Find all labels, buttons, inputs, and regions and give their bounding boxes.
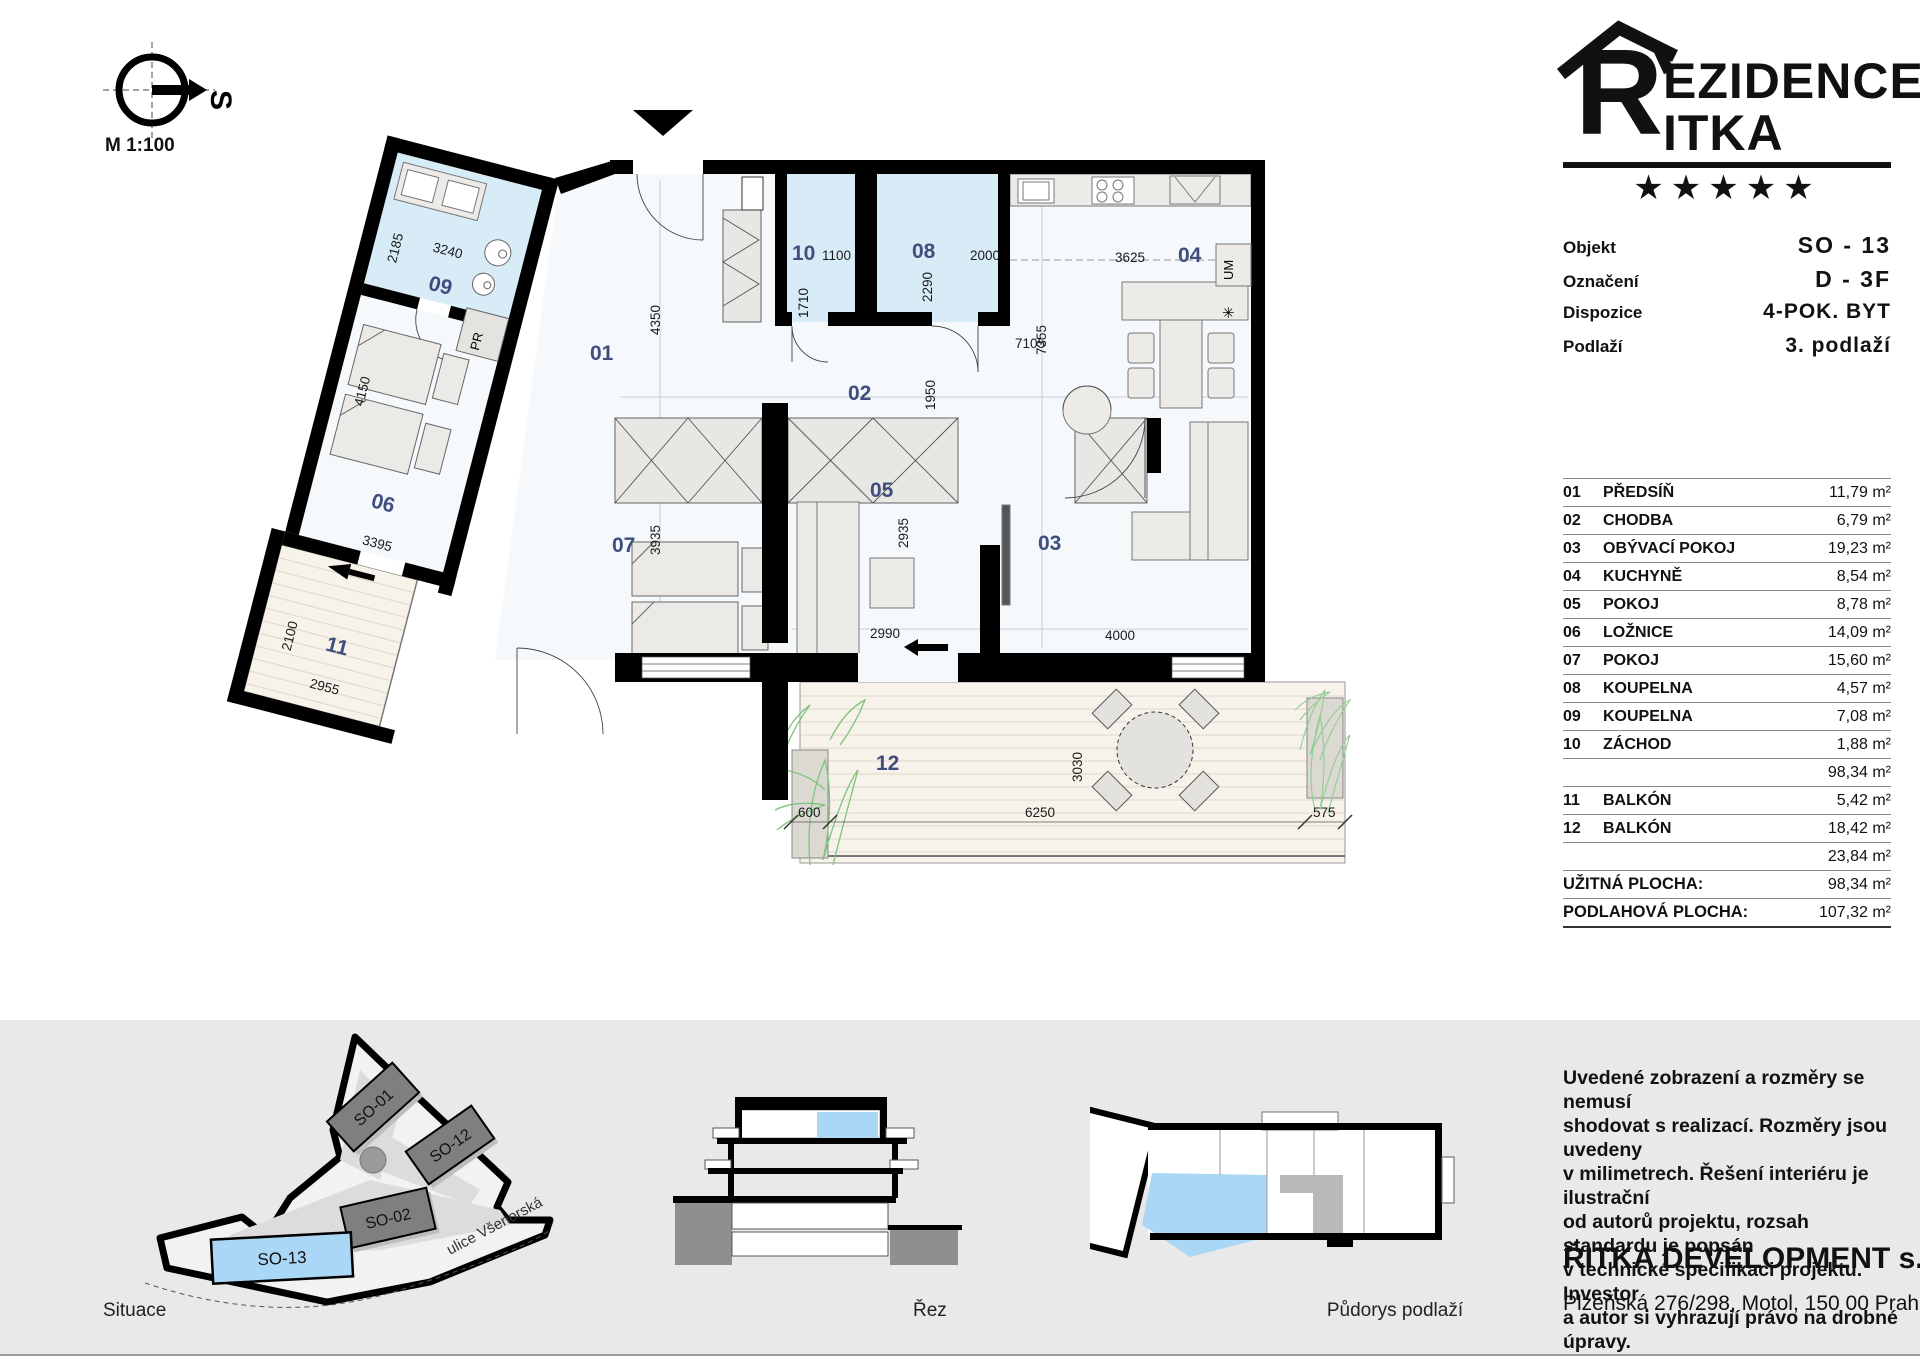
dim-2990: 2990 <box>870 626 900 641</box>
floor-plan: 3240 2185 09 PR 4150 06 3395 11 2100 295… <box>170 50 1370 870</box>
ground-slab <box>673 1196 896 1203</box>
table-row: 06 LOŽNICE 14,09 m² <box>1563 618 1891 646</box>
dim-6250: 6250 <box>1025 805 1055 820</box>
table-total-podlahova: PODLAHOVÁ PLOCHA: 107,32 m² <box>1563 898 1891 926</box>
info-row-dispozice: Dispozice 4-POK. BYT <box>1563 300 1891 334</box>
room-label-01: 01 <box>590 342 614 365</box>
table-row-balcony: 11 BALKÓN 5,42 m² <box>1563 786 1891 814</box>
info-label: Dispozice <box>1563 303 1642 323</box>
total-label: UŽITNÁ PLOCHA: <box>1563 875 1828 894</box>
company-address: Plzeňská 276/298, Motol, 150 00 Praha 5 <box>1563 1292 1908 1316</box>
row-num: 12 <box>1563 820 1603 838</box>
mini-floor-plan <box>1090 1085 1470 1270</box>
dim-1710: 1710 <box>796 288 811 318</box>
dim-4000: 4000 <box>1105 628 1135 643</box>
total-value: 107,32 m² <box>1819 904 1891 922</box>
table-total-uzitna: UŽITNÁ PLOCHA: 98,34 m² <box>1563 870 1891 898</box>
row-num: 07 <box>1563 652 1603 670</box>
caption-rez: Řez <box>913 1300 947 1322</box>
row-area: 14,09 m² <box>1828 624 1891 642</box>
row-area: 15,60 m² <box>1828 652 1891 670</box>
dim-2290: 2290 <box>920 272 935 302</box>
table-row: 08 KOUPELNA 4,57 m² <box>1563 674 1891 702</box>
row-name: ZÁCHOD <box>1603 736 1837 754</box>
info-row-oznaceni: Označení D - 3F <box>1563 266 1891 300</box>
total-label: PODLAHOVÁ PLOCHA: <box>1563 903 1819 922</box>
row-name: BALKÓN <box>1603 820 1828 838</box>
info-label: Objekt <box>1563 238 1616 258</box>
scale-label: M 1:100 <box>105 135 175 157</box>
roundabout <box>360 1147 386 1173</box>
brand-logo: R EZIDENCE ITKA ★★★★★ <box>1563 14 1891 214</box>
logo-line1: EZIDENCE <box>1663 56 1920 106</box>
mini-right-wall <box>1435 1123 1442 1235</box>
row-num: 05 <box>1563 596 1603 614</box>
info-row-objekt: Objekt SO - 13 <box>1563 232 1891 266</box>
mini-wing <box>1090 1107 1157 1254</box>
table-bottom-border <box>1563 926 1891 928</box>
row-area: 18,42 m² <box>1828 820 1891 838</box>
caption-pudorys: Půdorys podlaží <box>1295 1300 1495 1322</box>
row-name: KOUPELNA <box>1603 708 1837 726</box>
dim-3030: 3030 <box>1070 752 1085 782</box>
table-subtotal-balcony: 23,84 m² <box>1563 842 1891 870</box>
row-num: 11 <box>1563 792 1603 810</box>
dim-1950: 1950 <box>923 380 938 410</box>
room-label-04: 04 <box>1178 244 1202 267</box>
floor-slab <box>717 1138 907 1144</box>
table-row: 02 CHODBA 6,79 m² <box>1563 506 1891 534</box>
dim-4350: 4350 <box>648 305 663 335</box>
info-row-podlazi: Podlaží 3. podlaží <box>1563 334 1891 368</box>
shaft <box>742 177 763 210</box>
wall <box>892 1174 898 1198</box>
site-plan: SO-01 SO-12 SO-02 SO-13 ulice Všenorská <box>80 1030 570 1330</box>
ground-right <box>890 1230 958 1265</box>
info-label: Podlaží <box>1563 337 1623 357</box>
section-drawing <box>640 1080 970 1280</box>
total-value: 98,34 m² <box>1828 876 1891 894</box>
kitchen <box>1010 174 1251 206</box>
row-name: KUCHYNĚ <box>1603 568 1837 586</box>
row-num: 09 <box>1563 708 1603 726</box>
room-label-10: 10 <box>792 242 815 265</box>
row-name: KOUPELNA <box>1603 680 1837 698</box>
mini-highlight-unit <box>1142 1173 1267 1257</box>
entry-gap <box>633 160 703 174</box>
disclaimer-line: shodovat s realizací. Rozměry jsou uvede… <box>1563 1114 1903 1162</box>
balcony-rail <box>890 1160 918 1169</box>
info-value: D - 3F <box>1815 266 1891 293</box>
info-value: 3. podlaží <box>1785 334 1891 358</box>
mini-bottom-wall <box>1150 1233 1442 1240</box>
row-area: 4,57 m² <box>1837 680 1891 698</box>
row-name: POKOJ <box>1603 596 1837 614</box>
info-value: SO - 13 <box>1798 232 1891 259</box>
logo-stars: ★★★★★ <box>1563 168 1891 208</box>
row-area: 1,88 m² <box>1837 736 1891 754</box>
row-num: 04 <box>1563 568 1603 586</box>
dim-600: 600 <box>798 805 821 820</box>
row-area: 11,79 m² <box>1829 484 1891 502</box>
disclaimer-line: v milimetrech. Řešení interiéru je ilust… <box>1563 1162 1903 1210</box>
dining-set <box>1122 282 1248 408</box>
row-name: LOŽNICE <box>1603 624 1828 642</box>
room-label-12: 12 <box>876 752 899 775</box>
caption-situace: Situace <box>103 1300 166 1322</box>
dim-1100: 1100 <box>822 248 851 263</box>
subtotal-value: 98,34 m² <box>1828 764 1891 782</box>
room-label-07: 07 <box>612 534 635 557</box>
ground-left <box>675 1203 732 1265</box>
balcony-12 <box>775 682 1352 865</box>
logo-line2: ITKA <box>1663 108 1784 158</box>
basement-room <box>732 1203 888 1229</box>
row-num: 01 <box>1563 484 1603 502</box>
mini-balcony-right <box>1442 1157 1454 1203</box>
row-num: 06 <box>1563 624 1603 642</box>
subtotal-value: 23,84 m² <box>1828 848 1891 866</box>
floor-slab <box>708 1168 903 1174</box>
row-area: 19,23 m² <box>1828 540 1891 558</box>
highlight-unit-section <box>817 1112 878 1138</box>
row-num: 10 <box>1563 736 1603 754</box>
table-row: 04 KUCHYNĚ 8,54 m² <box>1563 562 1891 590</box>
disclaimer-line: Uvedené zobrazení a rozměry se nemusí <box>1563 1066 1903 1114</box>
dim-3625: 3625 <box>1115 250 1145 265</box>
balcony-rail <box>713 1128 739 1138</box>
dim-2935: 2935 <box>896 518 911 548</box>
entry-arrow <box>633 110 693 136</box>
row-name: OBÝVACÍ POKOJ <box>1603 540 1828 558</box>
table-subtotal-main: 98,34 m² <box>1563 758 1891 786</box>
row-num: 02 <box>1563 512 1603 530</box>
table-row: 10 ZÁCHOD 1,88 m² <box>1563 730 1891 758</box>
room-label-03: 03 <box>1038 532 1061 555</box>
logo-initial: R <box>1575 42 1661 142</box>
table-row: 03 OBÝVACÍ POKOJ 19,23 m² <box>1563 534 1891 562</box>
unit-info: Objekt SO - 13 Označení D - 3F Dispozice… <box>1563 232 1891 368</box>
row-name: CHODBA <box>1603 512 1837 530</box>
company-name: ŘITKA DEVELOPMENT s.r.o. <box>1563 1242 1908 1276</box>
round-table <box>1117 712 1193 788</box>
table-row: 09 KOUPELNA 7,08 m² <box>1563 702 1891 730</box>
mini-notch <box>1327 1238 1353 1247</box>
building-so13-label: SO-13 <box>257 1248 307 1270</box>
dim-3935: 3935 <box>648 525 663 555</box>
room-label-02: 02 <box>848 382 871 405</box>
basement-room <box>732 1232 888 1256</box>
table-row: 01 PŘEDSÍŇ 11,79 m² <box>1563 478 1891 506</box>
balcony-rail <box>886 1128 914 1138</box>
table-row-balcony: 12 BALKÓN 18,42 m² <box>1563 814 1891 842</box>
mini-top-wall <box>1148 1123 1442 1130</box>
row-area: 5,42 m² <box>1837 792 1891 810</box>
ground-line-right <box>888 1225 962 1230</box>
dim-575: 575 <box>1313 805 1336 820</box>
row-name: PŘEDSÍŇ <box>1603 484 1829 502</box>
wall <box>728 1174 734 1198</box>
row-name: POKOJ <box>1603 652 1828 670</box>
dim-2000: 2000 <box>970 248 1000 263</box>
row-area: 7,08 m² <box>1837 708 1891 726</box>
row-area: 8,78 m² <box>1837 596 1891 614</box>
balcony-rail <box>705 1160 731 1169</box>
row-num: 08 <box>1563 680 1603 698</box>
row-name: BALKÓN <box>1603 792 1837 810</box>
room-label-05: 05 <box>870 479 894 502</box>
row-area: 6,79 m² <box>1837 512 1891 530</box>
roof-slab <box>735 1097 887 1110</box>
table-row: 05 POKOJ 8,78 m² <box>1563 590 1891 618</box>
row-area: 8,54 m² <box>1837 568 1891 586</box>
table-row: 07 POKOJ 15,60 m² <box>1563 646 1891 674</box>
mini-wing-outline <box>1090 1107 1157 1254</box>
room-table: 01 PŘEDSÍŇ 11,79 m² 02 CHODBA 6,79 m² 03… <box>1563 478 1891 928</box>
info-label: Označení <box>1563 272 1639 292</box>
info-value: 4-POK. BYT <box>1763 300 1891 324</box>
dim-7355: 7355 <box>1034 325 1049 355</box>
washer-label: UM <box>1221 260 1236 280</box>
room-label-08: 08 <box>912 240 936 263</box>
row-num: 03 <box>1563 540 1603 558</box>
asterisk-symbol: ✳ <box>1222 305 1235 322</box>
